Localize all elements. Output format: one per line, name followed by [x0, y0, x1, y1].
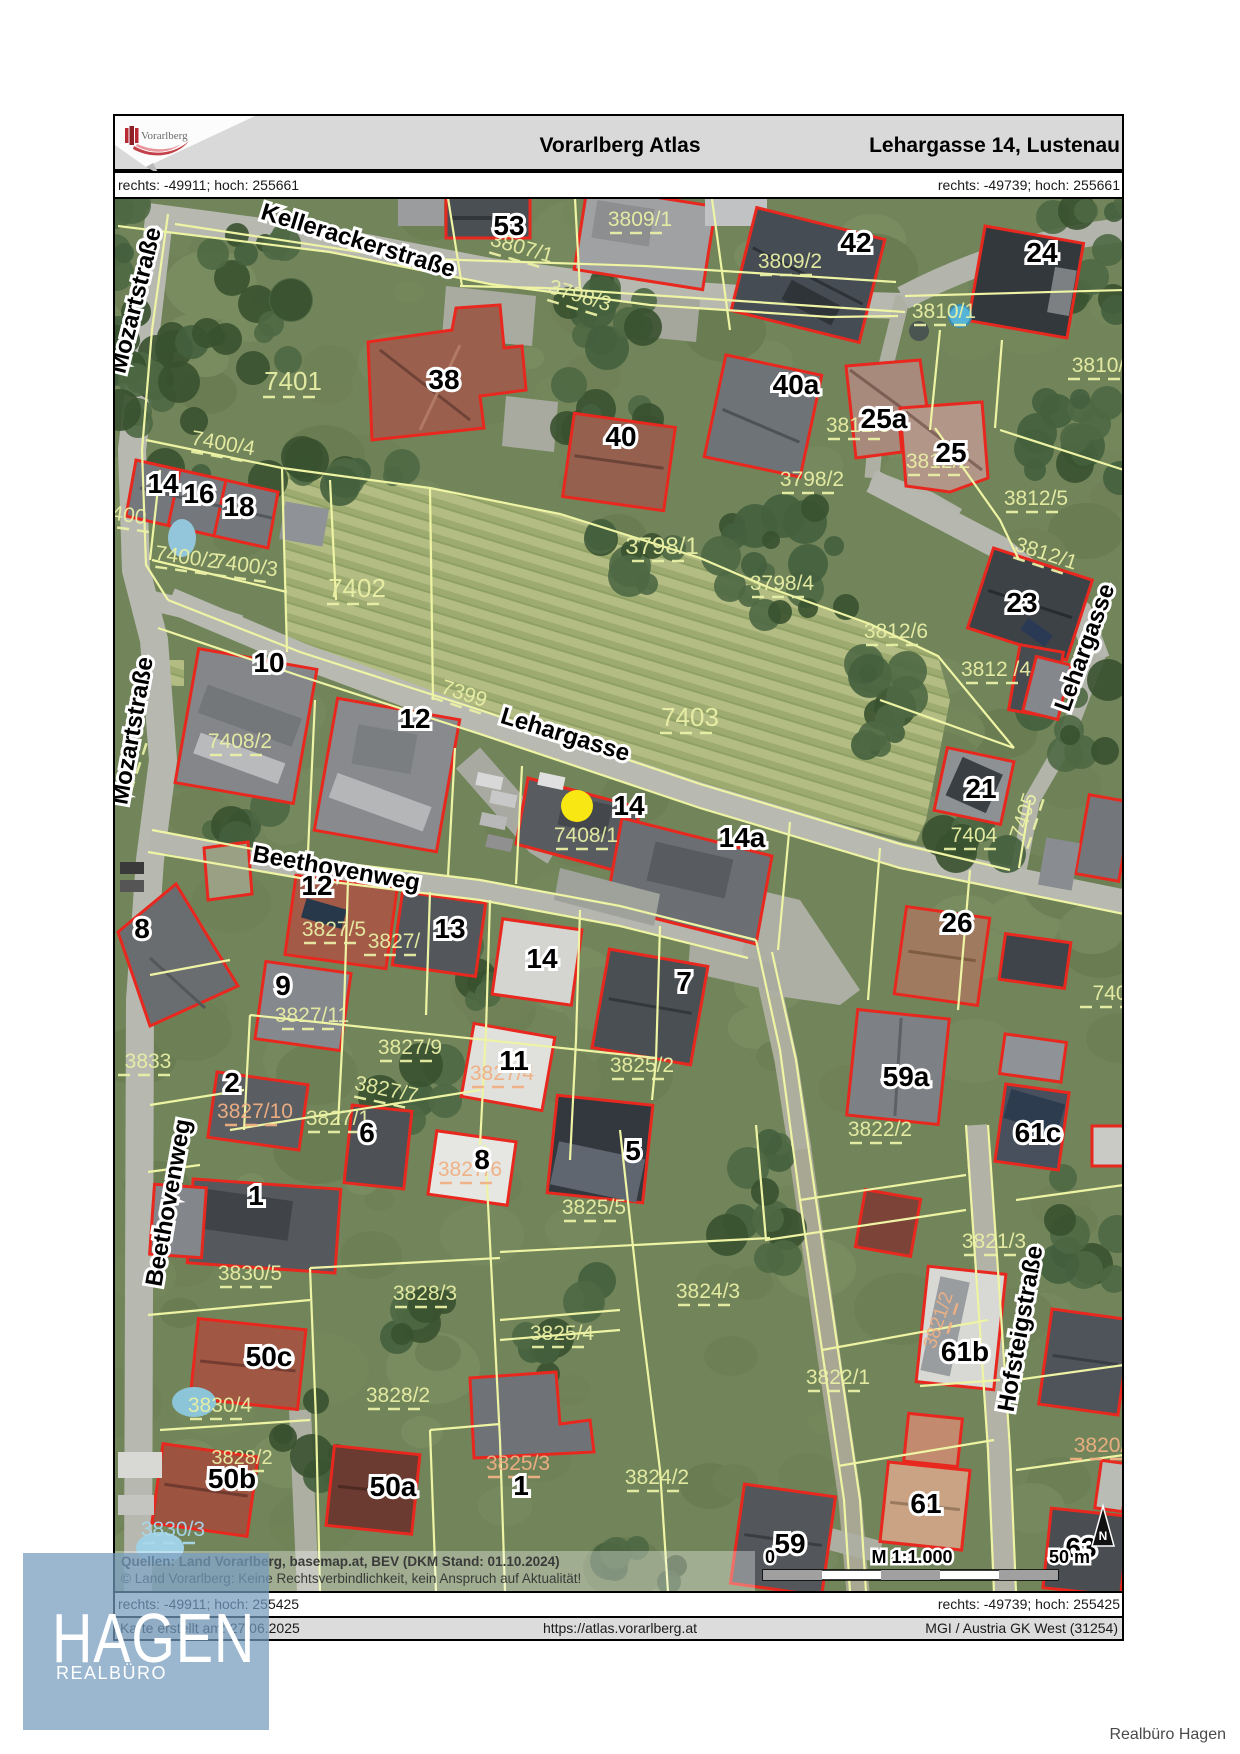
svg-text:3798/4: 3798/4	[750, 572, 815, 595]
svg-text:53: 53	[493, 210, 524, 241]
svg-text:3825/4: 3825/4	[530, 1322, 595, 1345]
svg-text:3810/: 3810/	[1072, 354, 1122, 377]
svg-text:2: 2	[224, 1067, 240, 1098]
svg-text:Vorarlberg: Vorarlberg	[141, 130, 188, 142]
svg-text:61b: 61b	[941, 1336, 989, 1367]
svg-text:1: 1	[513, 1470, 529, 1501]
svg-text:7401: 7401	[264, 366, 322, 396]
svg-text:42: 42	[840, 227, 871, 258]
svg-text:13: 13	[434, 913, 465, 944]
svg-text:3830/3: 3830/3	[141, 1518, 205, 1541]
svg-text:1: 1	[248, 1180, 264, 1211]
svg-text:16: 16	[183, 478, 214, 509]
svg-text:14: 14	[526, 943, 558, 974]
svg-text:3824/2: 3824/2	[625, 1466, 689, 1489]
svg-text:3833: 3833	[125, 1050, 172, 1073]
svg-text:3827/: 3827/	[368, 930, 421, 953]
svg-text:7402: 7402	[328, 573, 386, 603]
svg-text:11: 11	[499, 1045, 529, 1076]
svg-text:23: 23	[1006, 587, 1037, 618]
svg-text:3825/5: 3825/5	[562, 1196, 626, 1219]
svg-text:3824/3: 3824/3	[676, 1280, 740, 1303]
svg-text:50c: 50c	[246, 1341, 293, 1372]
svg-text:14: 14	[147, 468, 179, 499]
svg-text:9: 9	[275, 970, 291, 1001]
svg-text:N: N	[1099, 1529, 1108, 1543]
svg-text:3821/3: 3821/3	[962, 1230, 1026, 1253]
svg-text:3830/4: 3830/4	[188, 1394, 253, 1417]
svg-text:3827/6: 3827/6	[438, 1158, 502, 1181]
svg-text:3825/2: 3825/2	[610, 1054, 674, 1077]
svg-text:50 m: 50 m	[1049, 1547, 1090, 1567]
svg-text:7408/1: 7408/1	[554, 824, 618, 847]
svg-text:50a: 50a	[370, 1471, 417, 1502]
svg-text:3828/2: 3828/2	[366, 1384, 430, 1407]
svg-text:12: 12	[301, 870, 332, 901]
svg-text:3827/9: 3827/9	[378, 1036, 442, 1059]
svg-text:740: 740	[1092, 982, 1122, 1005]
svg-text:3812/5: 3812/5	[1004, 487, 1068, 510]
svg-text:25a: 25a	[861, 403, 908, 434]
svg-text:18: 18	[223, 491, 254, 522]
svg-text:40a: 40a	[773, 369, 820, 400]
svg-text:3809/1: 3809/1	[608, 208, 672, 231]
svg-text:3827/11: 3827/11	[275, 1004, 349, 1027]
svg-text:3812 /4: 3812 /4	[961, 658, 1031, 681]
svg-text:26: 26	[941, 907, 972, 938]
svg-text:40: 40	[605, 421, 636, 452]
svg-text:21: 21	[965, 773, 996, 804]
svg-text:8: 8	[474, 1144, 490, 1175]
svg-text:25: 25	[935, 437, 966, 468]
svg-text:50b: 50b	[208, 1463, 256, 1494]
svg-text:3798/1: 3798/1	[625, 533, 698, 560]
svg-text:3828/3: 3828/3	[393, 1282, 457, 1305]
svg-text:3812/6: 3812/6	[864, 620, 928, 643]
svg-text:3830/5: 3830/5	[218, 1262, 282, 1285]
svg-text:38: 38	[428, 364, 459, 395]
svg-text:5: 5	[625, 1135, 641, 1166]
svg-text:3820/: 3820/	[1074, 1434, 1122, 1457]
svg-text:14a: 14a	[719, 822, 766, 853]
svg-text:7: 7	[676, 966, 692, 997]
svg-text:61: 61	[910, 1488, 941, 1519]
svg-text:12: 12	[399, 703, 430, 734]
svg-text:3822/2: 3822/2	[848, 1118, 912, 1141]
svg-text:3827/5: 3827/5	[302, 918, 366, 941]
svg-text:M 1:1.000: M 1:1.000	[871, 1547, 952, 1567]
svg-text:3798/2: 3798/2	[780, 468, 844, 491]
svg-text:6: 6	[359, 1117, 375, 1148]
svg-text:7404: 7404	[951, 824, 998, 847]
svg-text:3822/1: 3822/1	[806, 1366, 870, 1389]
svg-text:59a: 59a	[883, 1061, 930, 1092]
svg-text:61c: 61c	[1015, 1117, 1062, 1148]
svg-text:3809/2: 3809/2	[758, 250, 822, 273]
svg-text:7403: 7403	[661, 702, 719, 732]
svg-text:0: 0	[765, 1547, 775, 1567]
svg-text:14: 14	[613, 790, 645, 821]
svg-text:59: 59	[774, 1528, 805, 1559]
svg-text:7408/2: 7408/2	[208, 730, 272, 753]
svg-text:400: 400	[115, 502, 148, 530]
svg-text:3810/1: 3810/1	[912, 300, 976, 323]
svg-text:8: 8	[134, 913, 150, 944]
svg-text:24: 24	[1026, 237, 1058, 268]
svg-text:3827/10: 3827/10	[217, 1100, 293, 1123]
svg-text:10: 10	[253, 647, 284, 678]
